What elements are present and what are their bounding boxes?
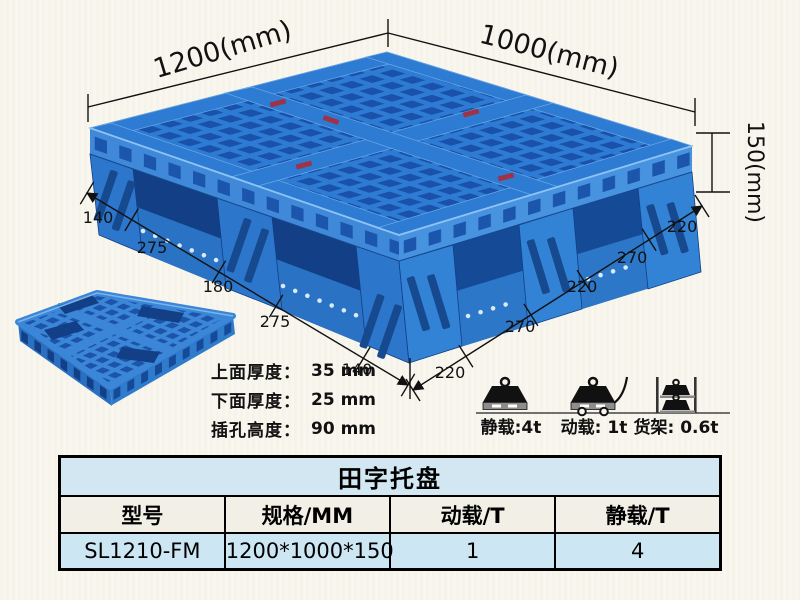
col-header-model: 型号 (60, 496, 225, 533)
spec-bottom-thickness-label: 下面厚度： (211, 387, 301, 412)
dim-right-4: 220 (667, 217, 698, 236)
cell-size: 1200*1000*150 (225, 533, 390, 570)
cell-model: SL1210-FM (60, 533, 225, 570)
thickness-specs: 上面厚度： 35 mm 下面厚度： 25 mm 插孔高度： 90 mm (211, 356, 376, 443)
dim-right-0: 220 (435, 363, 466, 382)
spec-top-thickness: 上面厚度： 35 mm (211, 356, 376, 385)
col-header-static-load: 静载/T (555, 496, 720, 533)
small-pallet-illustration (18, 293, 235, 406)
rack-load-icon (656, 377, 697, 413)
dim-label-150: 150(mm) (742, 121, 767, 223)
col-header-dynamic-load: 动载/T (390, 496, 555, 533)
cell-static-load: 4 (555, 533, 720, 570)
dim-left-3: 275 (260, 312, 291, 331)
dim-right-2: 220 (567, 277, 598, 296)
spec-fork-height-label: 插孔高度： (211, 416, 301, 441)
dim-right-1: 270 (505, 317, 536, 336)
product-sheet: 1200(mm) 1000(mm) 150(mm) 140 275 180 27… (0, 0, 800, 600)
table-row: SL1210-FM 1200*1000*150 1 4 (60, 533, 721, 570)
spec-top-thickness-label: 上面厚度： (211, 358, 301, 383)
col-header-size: 规格/MM (225, 496, 390, 533)
spec-table-title: 田字托盘 (60, 457, 721, 497)
cell-dynamic-load: 1 (390, 533, 555, 570)
static-load-label: 静载:4t (481, 417, 542, 438)
dim-right-3: 270 (617, 248, 648, 267)
dim-left-2: 180 (203, 277, 234, 296)
rack-load-label: 货架: 0.6t (634, 417, 719, 438)
dynamic-load-icon (571, 377, 627, 415)
spec-fork-height-value: 90 mm (311, 419, 376, 439)
spec-table: 田字托盘 型号 规格/MM 动载/T 静载/T SL1210-FM 1200*1… (58, 455, 722, 571)
dim-left-0: 140 (83, 208, 114, 227)
spec-bottom-thickness-value: 25 mm (311, 390, 376, 410)
static-load-icon (483, 378, 527, 410)
spec-top-thickness-value: 35 mm (311, 361, 376, 381)
dim-left-1: 275 (137, 238, 168, 257)
load-rating-icons: 静载:4t 动载: 1t 货架: 0.6t (476, 377, 730, 438)
dynamic-load-label: 动载: 1t (561, 417, 628, 438)
spec-fork-height: 插孔高度： 90 mm (211, 414, 376, 443)
spec-bottom-thickness: 下面厚度： 25 mm (211, 385, 376, 414)
